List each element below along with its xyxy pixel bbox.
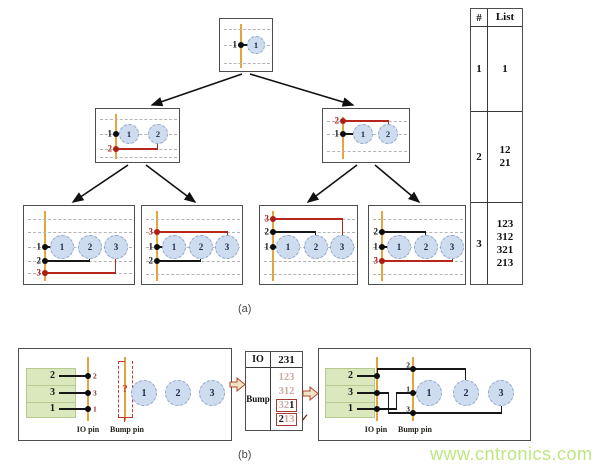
tree-leaf-123: 1 2 3 1 2 3 — [23, 205, 135, 285]
io-row-label: 1 — [348, 404, 353, 414]
die-right: 2 3 1 2 1 3 1 2 3 IO pin Bump pin — [318, 348, 531, 441]
io-assignment-value: 231 — [271, 352, 302, 367]
bump-circle: 3 — [440, 235, 464, 259]
bump-circle: 1 — [247, 36, 265, 54]
bump-dot-label: 2 — [406, 361, 410, 369]
bump-circle: 1 — [387, 235, 411, 259]
io-pin-dot — [85, 373, 91, 379]
pin-dot — [42, 270, 48, 276]
caption-b: (b) — [238, 449, 251, 461]
pin-label: 1 — [335, 130, 340, 139]
wire — [388, 392, 390, 413]
bump-circle: 2 — [414, 235, 438, 259]
wire — [45, 260, 90, 262]
uncertainty-guide — [118, 361, 119, 417]
bump-circle: 1 — [119, 124, 139, 144]
wire — [59, 375, 88, 377]
io-row-label: 3 — [348, 388, 353, 398]
io-bump-table: IO 231 Bump 123 312 321 213 ✓ — [245, 351, 303, 431]
wire — [273, 218, 343, 220]
wire — [116, 148, 158, 150]
tree-leaf-213: 1 2 3 2 1 3 — [368, 205, 466, 285]
checkmark-icon: ✓ — [301, 413, 309, 424]
wire — [342, 218, 344, 235]
table-row: 1 1 — [471, 27, 522, 112]
bump-circle: 2 — [304, 235, 328, 259]
caption-a: (a) — [238, 303, 251, 315]
io-pin-dot — [374, 406, 380, 412]
pin-label: 1 — [265, 243, 270, 252]
bump-pin-dot — [410, 366, 416, 372]
wire — [396, 392, 398, 409]
pin-label: 2 — [108, 145, 113, 154]
pin-dot — [270, 216, 276, 222]
bump-circle: 1 — [50, 235, 74, 259]
wire — [382, 231, 426, 233]
pin-label: 1 — [233, 41, 238, 50]
tree-node-12: 1 2 1 2 — [95, 108, 180, 163]
pin-dot — [340, 118, 346, 124]
pin-label: 1 — [37, 243, 42, 252]
wire — [343, 120, 389, 122]
bump-circle: 2 — [189, 235, 213, 259]
bump-option: 312 — [279, 385, 295, 399]
bump-circle: 3 — [199, 380, 225, 406]
wire — [465, 368, 467, 380]
pin-label: 2 — [37, 257, 42, 266]
io-pin-caption: IO pin — [77, 425, 99, 434]
question-mark: ? — [122, 383, 128, 395]
pin-dot — [379, 258, 385, 264]
bump-circle: 2 — [378, 124, 398, 144]
table-header-list: List — [488, 9, 522, 26]
pin-dot — [113, 146, 119, 152]
io-pin-dot — [374, 390, 380, 396]
bump-circle: 1 — [162, 235, 186, 259]
bump-dot-label: 3 — [406, 405, 410, 413]
pin-label: 3 — [149, 228, 154, 237]
io-pin-dot — [85, 390, 91, 396]
tree-leaf-321: 1 2 3 3 2 1 — [259, 205, 358, 285]
bump-circle: 1 — [131, 380, 157, 406]
io-pin-dot — [374, 373, 380, 379]
io-row-label: 2 — [50, 371, 55, 381]
bump-dot-label: 1 — [406, 385, 410, 393]
bump-circle: 2 — [453, 380, 479, 406]
io-dot-label: 3 — [93, 389, 97, 397]
bump-circle: 3 — [330, 235, 354, 259]
pin-dot — [42, 258, 48, 264]
bump-circle: 1 — [276, 235, 300, 259]
io-pin-dot — [85, 406, 91, 412]
bump-circle: 3 — [215, 235, 239, 259]
bump-circle: 2 — [148, 124, 168, 144]
wire — [501, 406, 503, 413]
io-header: IO — [246, 352, 271, 367]
wire — [388, 412, 502, 414]
io-row-label: 1 — [50, 404, 55, 414]
pin-dot — [270, 244, 276, 250]
pin-label: 1 — [374, 243, 379, 252]
pin-label: 2 — [265, 228, 270, 237]
pin-label: 1 — [149, 243, 154, 252]
die-left: 2 3 1 2 3 1 ? 1 2 3 IO pin Bump pin — [18, 348, 232, 441]
bump-option-selected: 213 — [276, 413, 298, 427]
pin-label: 3 — [37, 269, 42, 278]
tree-node-21: 1 2 2 1 — [322, 108, 410, 163]
io-dot-label: 1 — [93, 405, 97, 413]
bump-row-label: Bump — [246, 368, 271, 430]
table-row: 2 12 21 — [471, 112, 522, 203]
wire — [157, 144, 159, 149]
bump-pin-dot — [410, 410, 416, 416]
wire — [59, 392, 88, 394]
tree-node-1: 1 1 — [219, 18, 273, 72]
bump-option: 123 — [279, 371, 295, 385]
pin-dot — [154, 229, 160, 235]
tree-leaf-312: 1 2 3 3 1 2 — [141, 205, 243, 285]
pin-label: 2 — [149, 257, 154, 266]
pin-dot — [42, 244, 48, 250]
pin-dot — [154, 244, 160, 250]
flow-arrow-icon — [302, 386, 319, 401]
pin-label: 3 — [374, 257, 379, 266]
bump-option: 321 — [276, 399, 298, 413]
bump-circle: 2 — [78, 235, 102, 259]
bump-circle: 1 — [416, 380, 442, 406]
wire — [157, 260, 201, 262]
pin-label: 2 — [374, 228, 379, 237]
bump-circle: 3 — [488, 380, 514, 406]
wire — [273, 231, 316, 233]
pin-dot — [379, 229, 385, 235]
io-dot-label: 2 — [93, 372, 97, 380]
pin-dot — [154, 258, 160, 264]
bump-circle: 2 — [165, 380, 191, 406]
pin-dot — [270, 229, 276, 235]
wire — [59, 408, 88, 410]
io-pin-caption: IO pin — [365, 425, 387, 434]
sequence-table: # List 1 1 2 12 21 3 123 312 321 213 — [470, 8, 523, 285]
pin-dot — [379, 244, 385, 250]
bump-pin-caption: Bump pin — [110, 425, 144, 434]
table-row: 3 123 312 321 213 — [471, 203, 522, 284]
bump-circle: 1 — [353, 124, 373, 144]
bump-pin-caption: Bump pin — [398, 425, 432, 434]
pin-dot — [113, 131, 119, 137]
pin-label: 2 — [335, 117, 340, 126]
io-row-label: 3 — [50, 388, 55, 398]
io-row-label: 2 — [348, 371, 353, 381]
pin-dot — [238, 42, 244, 48]
pin-label: 1 — [108, 130, 113, 139]
figure: 1 1 1 2 1 2 1 2 2 1 — [0, 0, 614, 470]
wire — [115, 258, 117, 273]
wire — [382, 260, 453, 262]
pin-dot — [340, 131, 346, 137]
wire — [45, 272, 116, 274]
wire — [157, 231, 228, 233]
watermark: www.cntronics.com — [430, 444, 593, 465]
wire — [377, 368, 466, 370]
pin-label: 3 — [265, 215, 270, 224]
table-header-count: # — [471, 9, 488, 26]
bump-circle: 3 — [104, 235, 128, 259]
